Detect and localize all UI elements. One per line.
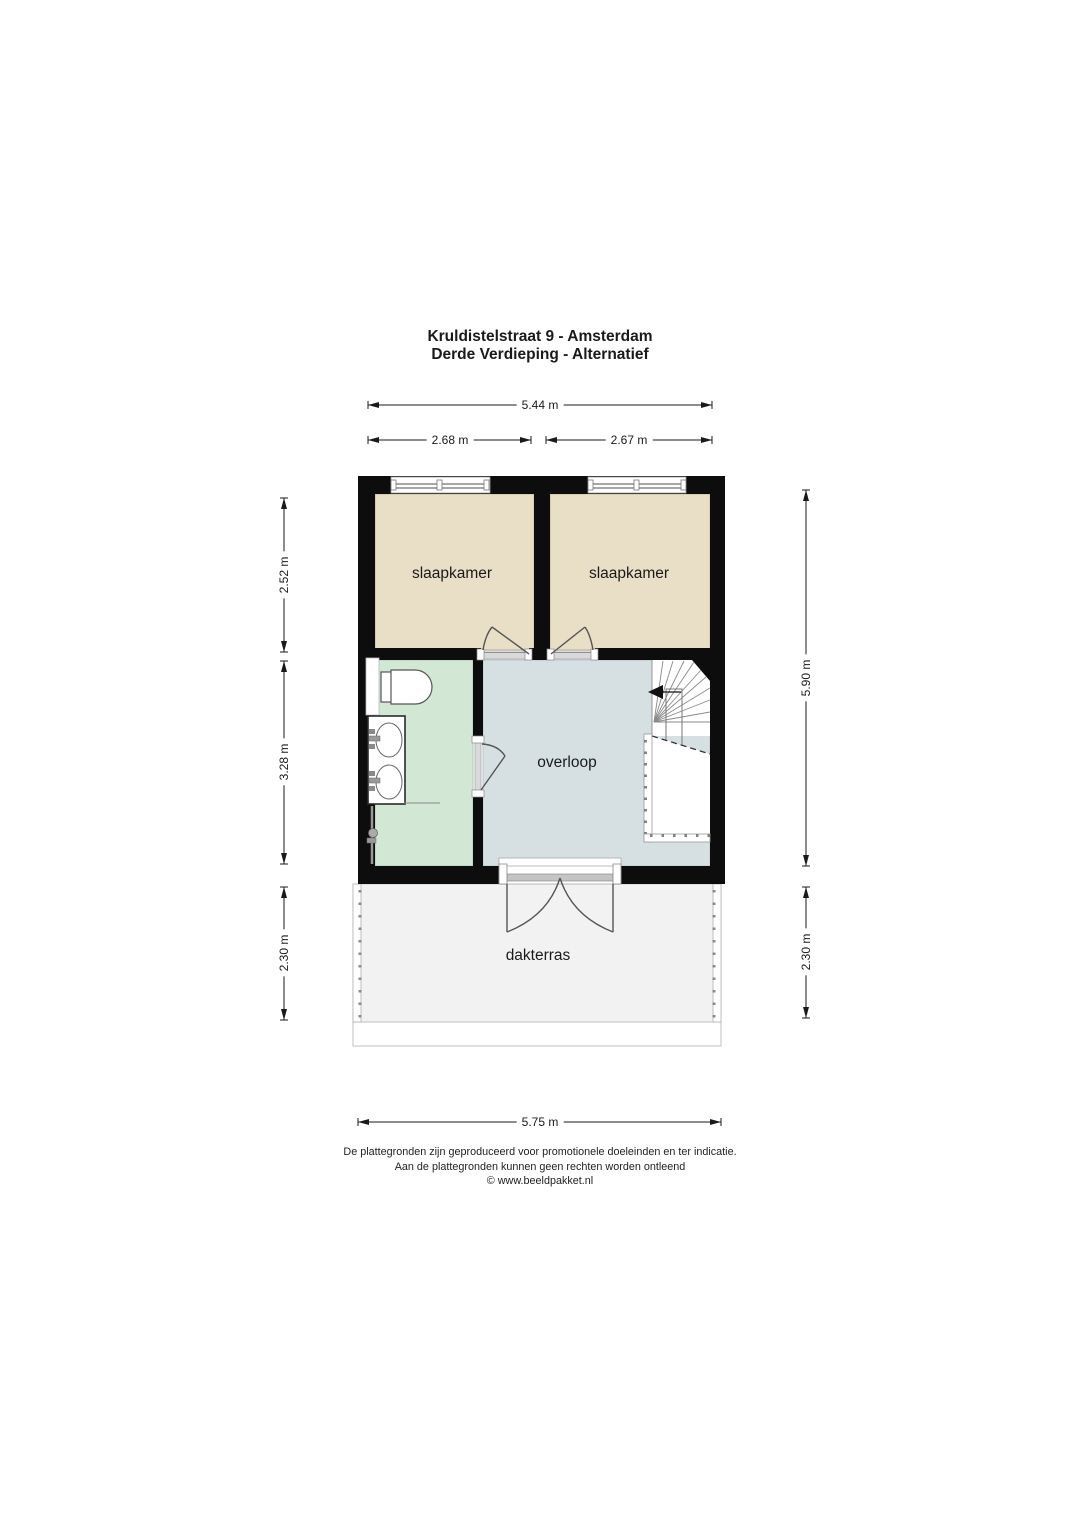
page-title: Kruldistelstraat 9 - Amsterdam Derde Ver… <box>0 328 1080 364</box>
room-label-bedroom-left: slaapkamer <box>412 565 492 583</box>
dim-top-right-room: 2.67 m <box>606 433 653 447</box>
staircase <box>644 660 710 842</box>
disclaimer-line-1: De plattegronden zijn geproduceerd voor … <box>0 1145 1080 1160</box>
dim-top-left-room: 2.68 m <box>427 433 474 447</box>
disclaimer-line-2: Aan de plattegronden kunnen geen rechten… <box>0 1160 1080 1175</box>
dim-left-middle: 3.28 m <box>277 739 291 786</box>
floorplan-page: Kruldistelstraat 9 - Amsterdam Derde Ver… <box>0 0 1080 1527</box>
sink-vanity <box>368 716 405 804</box>
room-label-roof-terrace: dakterras <box>506 947 571 965</box>
wall-niche <box>366 658 379 715</box>
dim-left-terrace: 2.30 m <box>277 930 291 977</box>
disclaimer-line-3: © www.beeldpakket.nl <box>0 1174 1080 1189</box>
dim-top-total: 5.44 m <box>517 398 564 412</box>
window-right <box>588 477 686 493</box>
window-left <box>391 477 490 493</box>
toilet-fixture <box>381 670 432 704</box>
dim-right-terrace: 2.30 m <box>799 929 813 976</box>
room-label-bedroom-right: slaapkamer <box>589 565 669 583</box>
title-address: Kruldistelstraat 9 - Amsterdam <box>0 328 1080 346</box>
dim-left-bedrooms: 2.52 m <box>277 552 291 599</box>
roof-terrace-area <box>353 884 721 1046</box>
room-label-landing: overloop <box>537 754 596 772</box>
dim-right-house: 5.90 m <box>799 655 813 702</box>
title-floor: Derde Verdieping - Alternatief <box>0 346 1080 364</box>
dim-bottom-total: 5.75 m <box>517 1115 564 1129</box>
void-railing-bottom <box>644 834 710 842</box>
disclaimer: De plattegronden zijn geproduceerd voor … <box>0 1145 1080 1189</box>
